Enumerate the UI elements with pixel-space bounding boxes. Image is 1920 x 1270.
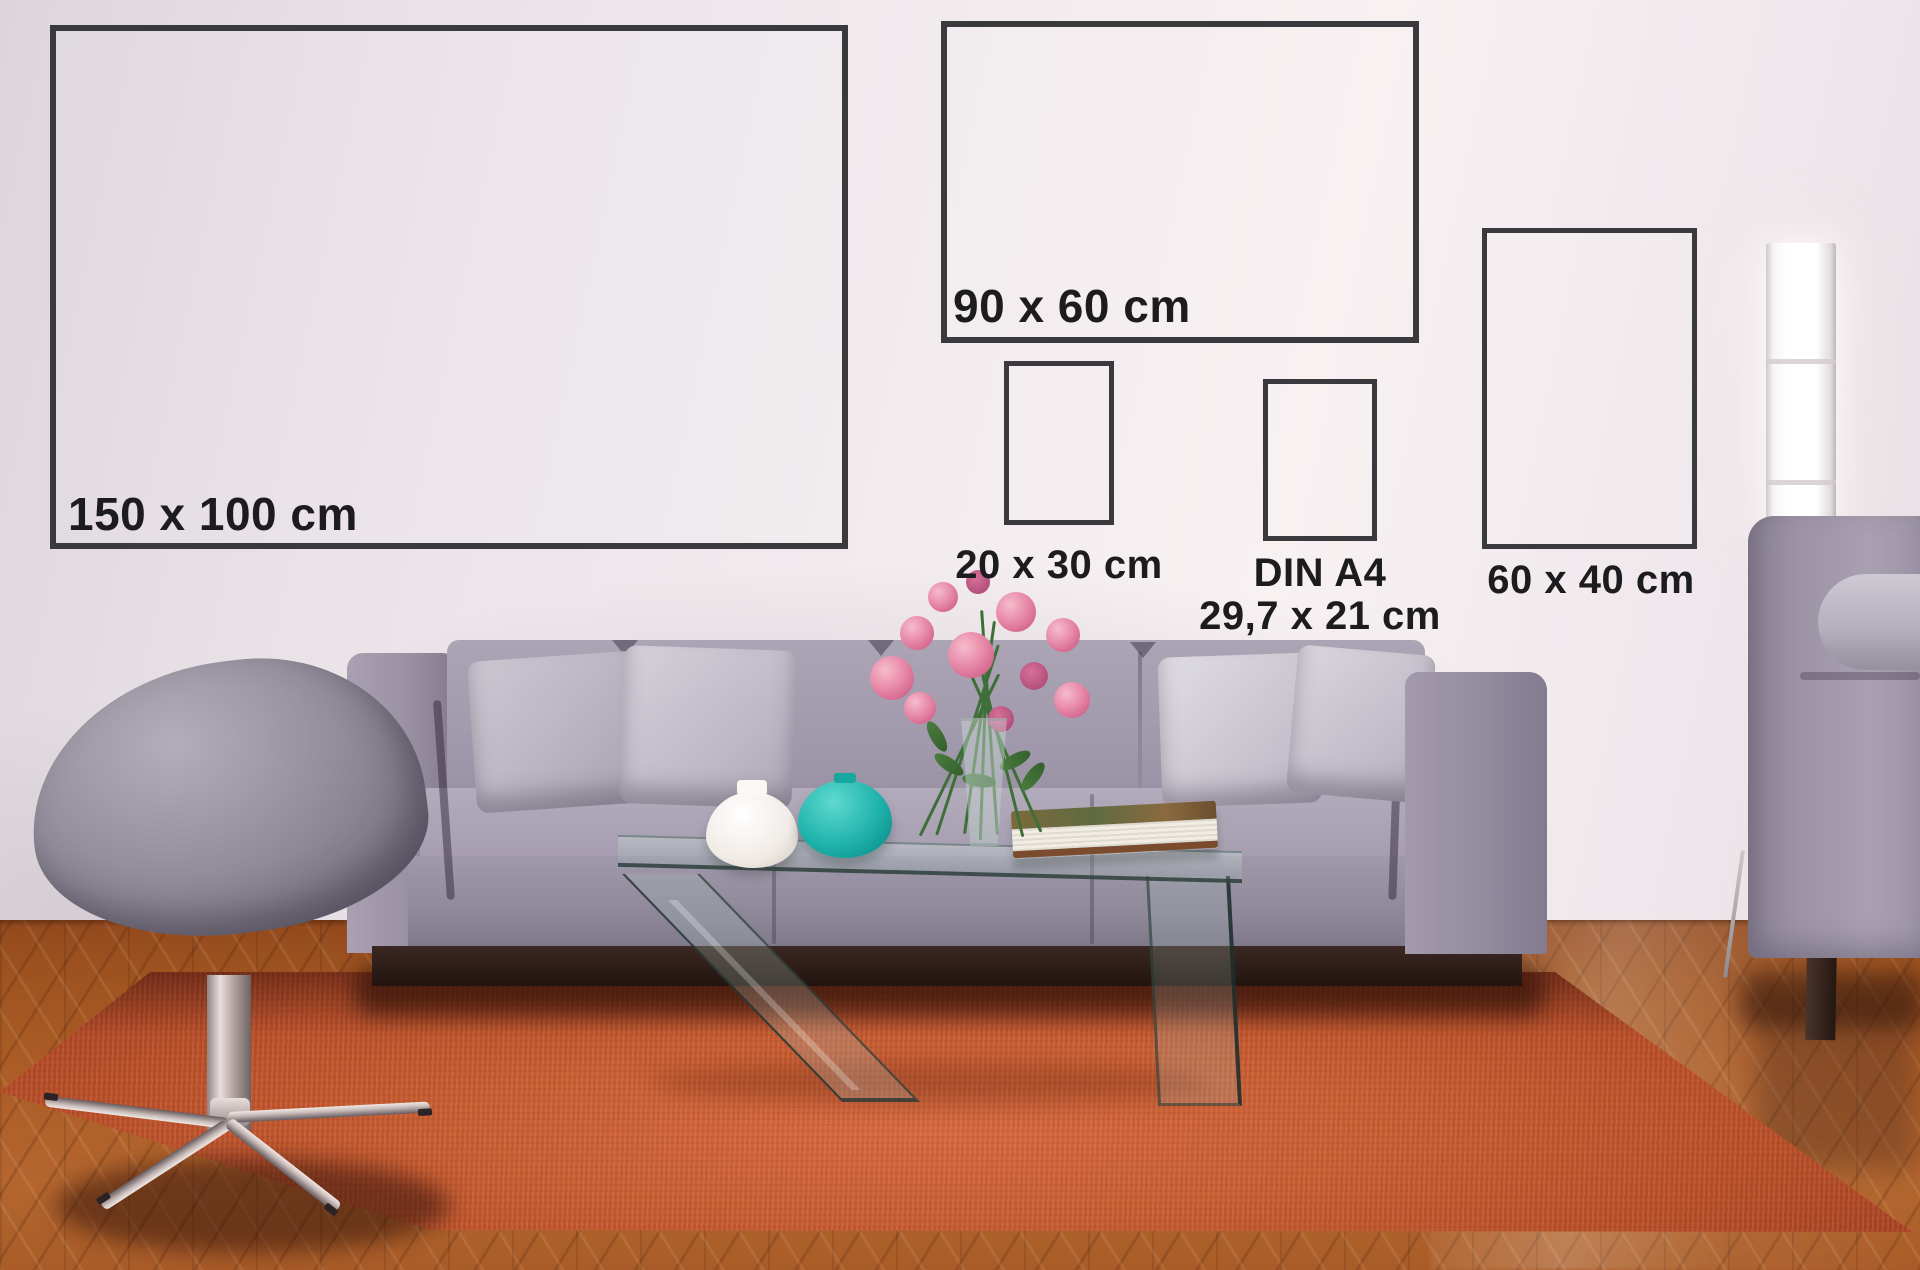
- size-label-20x30: 20 x 30 cm: [944, 543, 1174, 588]
- size-frame-din-a4: [1263, 379, 1377, 541]
- size-frame-150x100: [50, 25, 848, 549]
- flower-blossom: [870, 656, 914, 700]
- size-sublabel-din-a4: 29,7 x 21 cm: [1190, 594, 1450, 639]
- flower-leaf: [1017, 759, 1048, 794]
- flower-blossom: [900, 616, 934, 650]
- throw-pillow: [619, 645, 796, 809]
- flower-blossom: [904, 692, 936, 724]
- sofa-base-plinth: [372, 946, 1522, 986]
- flower-leaf: [923, 719, 951, 755]
- table-glass-leg-right: [1146, 876, 1242, 1106]
- flower-blossom: [948, 632, 994, 678]
- armchair-seam: [1800, 672, 1920, 680]
- size-label-90x60: 90 x 60 cm: [953, 279, 1191, 333]
- size-label-din-a4: DIN A4: [1205, 551, 1435, 596]
- bolster-pillow: [1818, 574, 1920, 670]
- size-label-60x40: 60 x 40 cm: [1478, 558, 1704, 603]
- stool-shadow: [55, 1158, 450, 1253]
- size-frame-20x30: [1004, 361, 1114, 525]
- flower-blossom: [1054, 682, 1090, 718]
- flower-bouquet: [870, 570, 1100, 870]
- size-frame-60x40: [1482, 228, 1697, 549]
- armchair-leg: [1805, 952, 1837, 1041]
- flower-blossom: [1046, 618, 1080, 652]
- sofa-armrest-right: [1405, 672, 1547, 954]
- flower-bud: [1020, 662, 1048, 690]
- size-label-150x100: 150 x 100 cm: [68, 487, 358, 541]
- living-room-poster-size-mockup: 150 x 100 cm 90 x 60 cm 20 x 30 cm DIN A…: [0, 0, 1920, 1270]
- flower-blossom: [996, 592, 1036, 632]
- floor-lamp: [1766, 243, 1836, 535]
